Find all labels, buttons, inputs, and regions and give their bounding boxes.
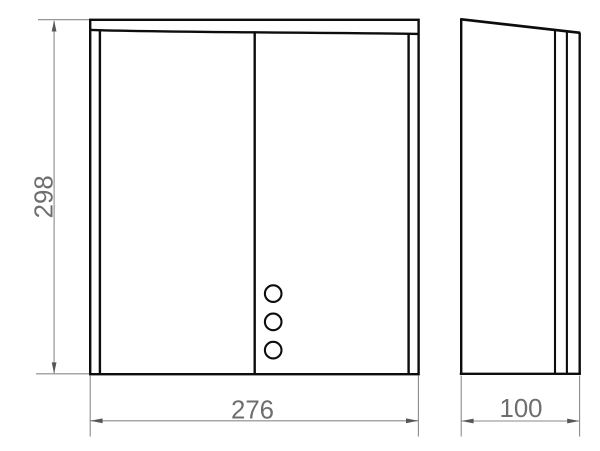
svg-text:276: 276 — [231, 396, 274, 424]
svg-text:100: 100 — [499, 395, 542, 423]
svg-text:298: 298 — [30, 175, 58, 218]
